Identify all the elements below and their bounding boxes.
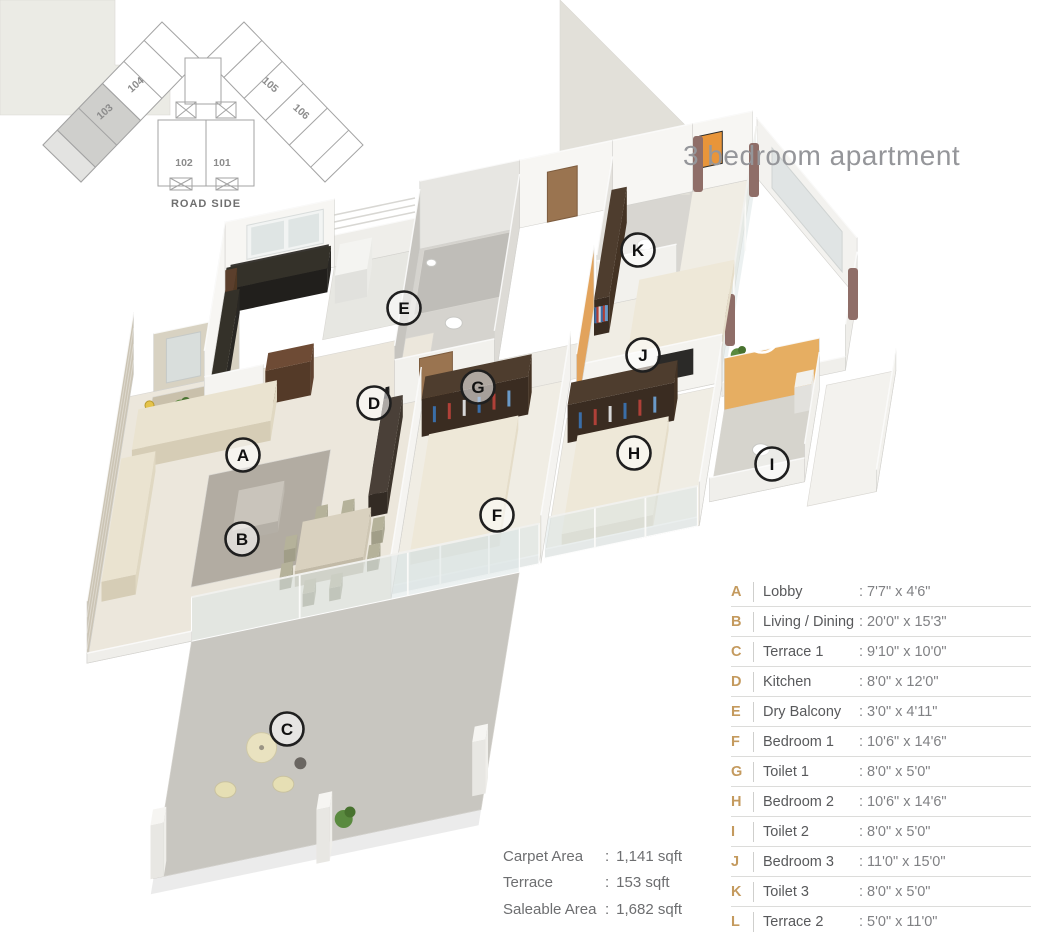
legend-row-K: KToilet 3: 8'0" x 5'0" <box>731 877 1031 907</box>
legend-key: I <box>731 824 753 840</box>
legend-row-C: CTerrace 1: 9'10" x 10'0" <box>731 637 1031 667</box>
room-marker-G: G <box>462 371 495 404</box>
legend-room-size: : 10'6" x 14'6" <box>859 794 947 810</box>
unit-number-101: 101 <box>213 157 231 169</box>
room-marker-D: D <box>358 387 391 420</box>
area-label: Terrace <box>503 874 605 891</box>
room-marker-C: C <box>271 713 304 746</box>
area-label: Carpet Area <box>503 848 605 865</box>
legend-row-I: IToilet 2: 8'0" x 5'0" <box>731 817 1031 847</box>
legend-room-size: : 5'0" x 11'0" <box>859 914 937 930</box>
legend-room-name: Lobby <box>753 582 803 602</box>
room-legend: ALobby: 7'7" x 4'6"BLiving / Dining: 20'… <box>731 577 1031 936</box>
svg-text:I: I <box>770 455 775 474</box>
room-marker-H: H <box>618 437 651 470</box>
keyplan-core <box>185 58 221 104</box>
room-marker-I: I <box>756 448 789 481</box>
legend-key: B <box>731 614 753 630</box>
legend-room-size: : 3'0" x 4'11" <box>859 704 937 720</box>
svg-text:F: F <box>492 506 502 525</box>
area-label: Saleable Area <box>503 901 605 918</box>
legend-key: G <box>731 764 753 780</box>
legend-key: F <box>731 734 753 750</box>
legend-row-D: DKitchen: 8'0" x 12'0" <box>731 667 1031 697</box>
keyplan: 103 104 105 106 102 101 ROAD SIDE <box>0 0 420 225</box>
legend-room-size: : 20'0" x 15'3" <box>859 614 947 630</box>
legend-room-size: : 11'0" x 15'0" <box>859 854 946 870</box>
svg-text:B: B <box>236 530 248 549</box>
area-value: 1,682 sqft <box>616 901 682 918</box>
legend-key: E <box>731 704 753 720</box>
legend-room-size: : 8'0" x 5'0" <box>859 824 930 840</box>
svg-text:J: J <box>638 346 647 365</box>
svg-text:L: L <box>757 327 767 346</box>
legend-room-size: : 7'7" x 4'6" <box>859 584 930 600</box>
room-marker-B: B <box>226 523 259 556</box>
brochure-page: ABCDEFGHIJKL <box>0 0 1039 948</box>
legend-room-size: : 10'6" x 14'6" <box>859 734 947 750</box>
legend-room-name: Kitchen <box>753 672 811 692</box>
legend-room-size: : 8'0" x 5'0" <box>859 884 930 900</box>
road-side-label: ROAD SIDE <box>171 198 241 210</box>
unit-number-102: 102 <box>175 157 193 169</box>
svg-text:E: E <box>398 299 409 318</box>
legend-room-name: Toilet 2 <box>753 822 809 842</box>
area-summary: Carpet Area:1,141 sqftTerrace:153 sqftSa… <box>503 843 743 923</box>
legend-room-name: Terrace 1 <box>753 642 823 662</box>
keyplan-building-outline <box>43 22 363 190</box>
legend-room-name: Bedroom 3 <box>753 852 834 872</box>
legend-row-H: HBedroom 2: 10'6" x 14'6" <box>731 787 1031 817</box>
legend-row-F: FBedroom 1: 10'6" x 14'6" <box>731 727 1031 757</box>
room-marker-E: E <box>388 292 421 325</box>
area-value: 1,141 sqft <box>616 848 682 865</box>
area-row: Terrace:153 sqft <box>503 870 743 897</box>
legend-key: C <box>731 644 753 660</box>
legend-key: D <box>731 674 753 690</box>
legend-room-name: Terrace 2 <box>753 912 823 932</box>
legend-room-name: Toilet 3 <box>753 882 809 902</box>
legend-key: A <box>731 584 753 600</box>
legend-room-name: Bedroom 1 <box>753 732 834 752</box>
svg-text:D: D <box>368 394 380 413</box>
svg-text:H: H <box>628 444 640 463</box>
legend-row-L: LTerrace 2: 5'0" x 11'0" <box>731 907 1031 936</box>
area-separator: : <box>605 874 609 891</box>
page-title: 3 bedroom apartment <box>683 140 960 172</box>
area-separator: : <box>605 848 609 865</box>
legend-row-E: EDry Balcony: 3'0" x 4'11" <box>731 697 1031 727</box>
svg-text:K: K <box>632 241 645 260</box>
legend-room-size: : 8'0" x 5'0" <box>859 764 930 780</box>
room-marker-L: L <box>746 320 779 353</box>
legend-row-G: GToilet 1: 8'0" x 5'0" <box>731 757 1031 787</box>
room-marker-J: J <box>627 339 660 372</box>
area-value: 153 sqft <box>616 874 669 891</box>
legend-room-size: : 8'0" x 12'0" <box>859 674 939 690</box>
legend-room-name: Living / Dining <box>753 612 854 632</box>
svg-text:A: A <box>237 446 249 465</box>
svg-text:G: G <box>471 378 484 397</box>
svg-text:C: C <box>281 720 293 739</box>
legend-row-B: BLiving / Dining: 20'0" x 15'3" <box>731 607 1031 637</box>
legend-key: H <box>731 794 753 810</box>
legend-row-J: JBedroom 3: 11'0" x 15'0" <box>731 847 1031 877</box>
room-marker-A: A <box>227 439 260 472</box>
area-separator: : <box>605 901 609 918</box>
legend-room-name: Toilet 1 <box>753 762 809 782</box>
legend-room-name: Bedroom 2 <box>753 792 834 812</box>
area-row: Carpet Area:1,141 sqft <box>503 843 743 870</box>
legend-room-name: Dry Balcony <box>753 702 841 722</box>
room-marker-F: F <box>481 499 514 532</box>
legend-room-size: : 9'10" x 10'0" <box>859 644 947 660</box>
room-marker-K: K <box>622 234 655 267</box>
area-row: Saleable Area:1,682 sqft <box>503 896 743 923</box>
legend-row-A: ALobby: 7'7" x 4'6" <box>731 577 1031 607</box>
